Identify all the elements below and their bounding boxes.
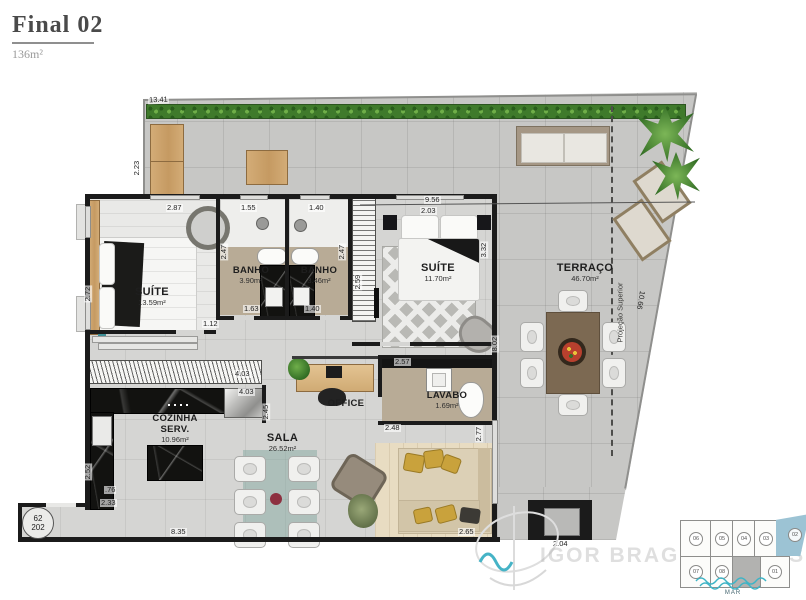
keyplan-unit-label: 06 [689, 532, 703, 546]
suite2-closet [352, 197, 376, 322]
lavabo-area: 1.69m² [402, 402, 492, 411]
suite1-door-gap [176, 330, 204, 334]
dim-banho1-left: 2.47 [220, 244, 228, 261]
terraco-name: TERRAÇO [540, 262, 630, 275]
glass-door-right [492, 420, 498, 504]
dim-banho1-top: 1.55 [240, 204, 257, 212]
table-centerpiece [270, 493, 282, 505]
window-top [300, 195, 330, 200]
keyplan-unit-05: 05 [710, 520, 734, 558]
sun-lounger [150, 124, 184, 162]
sala-area: 26.52m² [240, 445, 325, 454]
page-area: 136m² [12, 47, 43, 62]
pizza [562, 342, 582, 362]
suite1-name: SUÍTE [112, 286, 192, 299]
sala-label: SALA 26.52m² [240, 432, 325, 453]
unit-badge: 62 202 [22, 507, 54, 539]
lavabo-label: LAVABO 1.69m² [402, 391, 492, 411]
suite1-wardrobe-door [92, 336, 198, 343]
keyplan-unit-04: 04 [732, 520, 756, 558]
cozinha-label: COZINHA SERV. 10.96m² [130, 414, 220, 444]
sofa-pillow [403, 452, 426, 473]
dim-closet-left: 2.59 [354, 274, 362, 291]
dim-wardrobe: 4.03 [234, 370, 251, 378]
keyplan: 06 05 04 03 02 07 08 01 MAR [678, 512, 804, 598]
dim-banho1-bottom: 1.63 [243, 305, 260, 313]
dim-office-top: 2.57 [394, 358, 411, 366]
dim-suite1-left: 2.72 [84, 286, 92, 303]
wall-bottom [18, 537, 500, 542]
dim-suite2-top: 2.03 [420, 207, 437, 215]
keyplan-unit-label: 03 [759, 532, 773, 546]
shower-head-icon [256, 217, 269, 230]
projection-label: Projeção Superior [616, 278, 625, 348]
banho1-door-gap [234, 316, 254, 320]
sala-plant [348, 494, 378, 528]
banho1-area: 3.90m² [218, 277, 284, 286]
dim-kitchen-top: 4.03 [238, 388, 255, 396]
page-title: Final 02 [12, 12, 103, 39]
suite2-nightstand [477, 215, 491, 230]
dim-office-bottom: 2.48 [384, 424, 401, 432]
wall-right [492, 194, 497, 420]
pizza-plate [558, 338, 586, 366]
dining-chair [288, 456, 320, 482]
keyplan-unit-02-highlighted: 02 [776, 514, 806, 556]
dim-entry-b: 2.33 [100, 499, 117, 507]
suite2-name: SUÍTE [396, 262, 480, 275]
wall-suite2-bottom [352, 342, 497, 346]
banho1-toilet [257, 248, 287, 265]
dining-chair [234, 522, 266, 548]
window-left [85, 206, 91, 238]
outdoor-sofa-cushion [564, 133, 607, 163]
hedge-strip [146, 104, 686, 119]
lavabo-sink [426, 368, 452, 392]
outdoor-sofa [516, 126, 610, 166]
dining-chair [234, 456, 266, 482]
wall-lavabo-left [378, 355, 382, 397]
banho2-toilet [291, 248, 319, 265]
terrace-chair [558, 290, 588, 312]
kitchen-sink [92, 416, 112, 446]
keyplan-unit-06: 06 [680, 520, 712, 558]
terrace-chair [558, 394, 588, 416]
window-left [85, 298, 91, 330]
banho2-area: 3.46m² [288, 277, 350, 286]
banho2-label: BANHO 3.46m² [288, 266, 350, 286]
sun-lounger [246, 150, 288, 185]
dining-chair [234, 489, 266, 515]
dim-suites-row-top: 9.56 [424, 196, 441, 204]
keyplan-unit-label: 02 [788, 528, 802, 542]
suite2-door-gap [380, 342, 410, 346]
dim-banho2-bottom: 1.40 [304, 305, 321, 313]
suite1-area: 13.59m² [112, 299, 192, 308]
dim-kitchen-left: 2.52 [84, 464, 92, 481]
window-top [150, 195, 200, 200]
kitchen-island [147, 445, 203, 481]
banho1-label: BANHO 3.90m² [218, 266, 284, 286]
floorplan-page: Final 02 136m² Projeção Superior [0, 0, 806, 600]
suite2-nightstand [383, 215, 397, 230]
keyplan-unit-label: 05 [715, 532, 729, 546]
suite1-pillow [99, 243, 115, 285]
window-top [240, 195, 268, 200]
terrace-left-edge [143, 100, 145, 197]
dim-bottom: 8.35 [170, 528, 187, 536]
dim-suite1-bottom: 1.12 [202, 320, 219, 328]
dim-sala-right: 2.77 [475, 426, 483, 443]
office-label: OFFICE [306, 399, 386, 410]
sala-name: SALA [240, 432, 325, 445]
unit-number: 202 [31, 523, 44, 532]
suite1-label: SUÍTE 13.59m² [112, 286, 192, 307]
dim-entry-a: .76 [104, 486, 116, 494]
suite2-label: SUÍTE 11.70m² [396, 262, 480, 283]
terrace-chair [602, 358, 626, 388]
cozinha-area: 10.96m² [130, 436, 220, 445]
wall-banho2-closet [348, 197, 352, 320]
wall-banho1-banho2 [285, 197, 289, 320]
dim-suite1-top: 2.87 [166, 204, 183, 212]
office-plant [288, 358, 310, 380]
dim-banho2-right: 2.47 [338, 244, 346, 261]
stove-burners [166, 403, 192, 407]
terrace-chair [520, 358, 544, 388]
office-wall [292, 356, 380, 359]
dining-chair [288, 522, 320, 548]
dim-suite2-right: 3.32 [480, 242, 488, 259]
suite2-area: 11.70m² [396, 275, 480, 284]
suite2-tv-panel [374, 288, 379, 318]
dim-hall-right: 8.02 [491, 336, 499, 353]
banho2-door-gap [320, 316, 340, 320]
title-rule [12, 42, 94, 44]
dim-terrace-top: 13.41 [148, 96, 169, 105]
dim-terrace-left: 2.23 [133, 160, 141, 177]
banho1-sink [265, 287, 283, 307]
office-monitor [326, 366, 342, 378]
suite1-wardrobe-door [98, 343, 198, 350]
office-name: OFFICE [306, 399, 386, 410]
sea-label: MAR [678, 590, 788, 596]
wall-left [85, 194, 90, 510]
dim-banho2-top: 1.40 [308, 204, 325, 212]
shower-head-icon [294, 219, 307, 232]
entry-door-gap [46, 503, 76, 507]
keyplan-unit-03: 03 [754, 520, 778, 558]
outdoor-sofa-cushion [521, 133, 564, 163]
dining-chair [288, 489, 320, 515]
sea-waves-icon [694, 576, 778, 590]
lavabo-sink-basin [432, 373, 446, 387]
unit-floor: 62 [34, 514, 43, 523]
keyplan-unit-label: 04 [737, 532, 751, 546]
terrace-chair [520, 322, 544, 352]
dim-kitchen-right: 2.45 [262, 404, 270, 421]
